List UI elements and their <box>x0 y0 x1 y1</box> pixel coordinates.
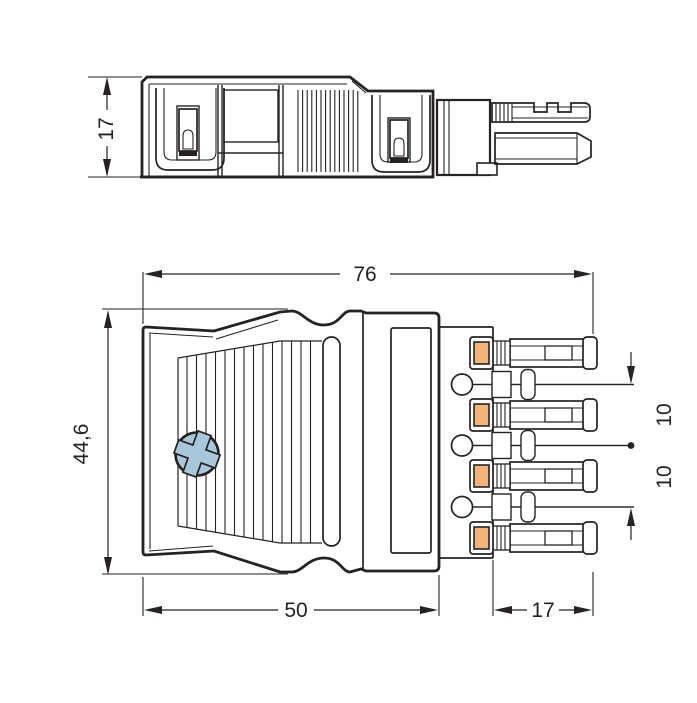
side-right-latch <box>372 95 430 172</box>
terminal-contact-2 <box>470 399 597 431</box>
front-block <box>363 313 431 571</box>
dim-terminal-length-label: 17 <box>531 599 554 622</box>
terminal-opening-orange <box>474 404 489 426</box>
side-left-latch <box>156 88 224 170</box>
dim-total-width: 76 <box>143 263 593 334</box>
side-upper-contact <box>492 103 590 122</box>
side-view: 17 <box>88 77 591 177</box>
side-ribs <box>298 90 358 172</box>
technical-drawing-page: 17 <box>0 0 697 703</box>
grip-slot <box>323 337 340 546</box>
terminal-opening-orange <box>474 465 489 487</box>
dim-terminal-length: 17 <box>493 560 593 622</box>
dim-side-height-label: 17 <box>95 117 118 140</box>
dim-side-height: 17 <box>95 77 118 177</box>
side-socket-block <box>437 100 497 175</box>
dim-total-width-label: 76 <box>353 263 376 286</box>
terminal-contact-1 <box>470 337 597 369</box>
dim-pole-pitch: 10 10 <box>627 352 676 540</box>
terminal-contact-4 <box>470 522 597 554</box>
side-lower-contact <box>495 133 591 164</box>
dim-front-height: 44,6 <box>70 310 112 575</box>
dim-pole-pitch-upper-label: 10 <box>653 403 676 426</box>
terminal-opening-orange <box>474 527 489 549</box>
pole-keyways <box>452 370 635 523</box>
connector-dimension-drawing: 17 <box>0 0 697 703</box>
terminal-contact-3 <box>470 460 597 492</box>
terminal-opening-orange <box>474 342 489 364</box>
front-view: 76 44,6 50 17 <box>70 263 676 622</box>
pozidriv-screw-icon <box>169 426 225 482</box>
dim-housing-width: 50 <box>143 575 439 622</box>
dim-pole-pitch-lower-label: 10 <box>653 465 676 488</box>
dim-front-height-label: 44,6 <box>70 424 93 465</box>
dim-housing-width-label: 50 <box>284 599 307 622</box>
